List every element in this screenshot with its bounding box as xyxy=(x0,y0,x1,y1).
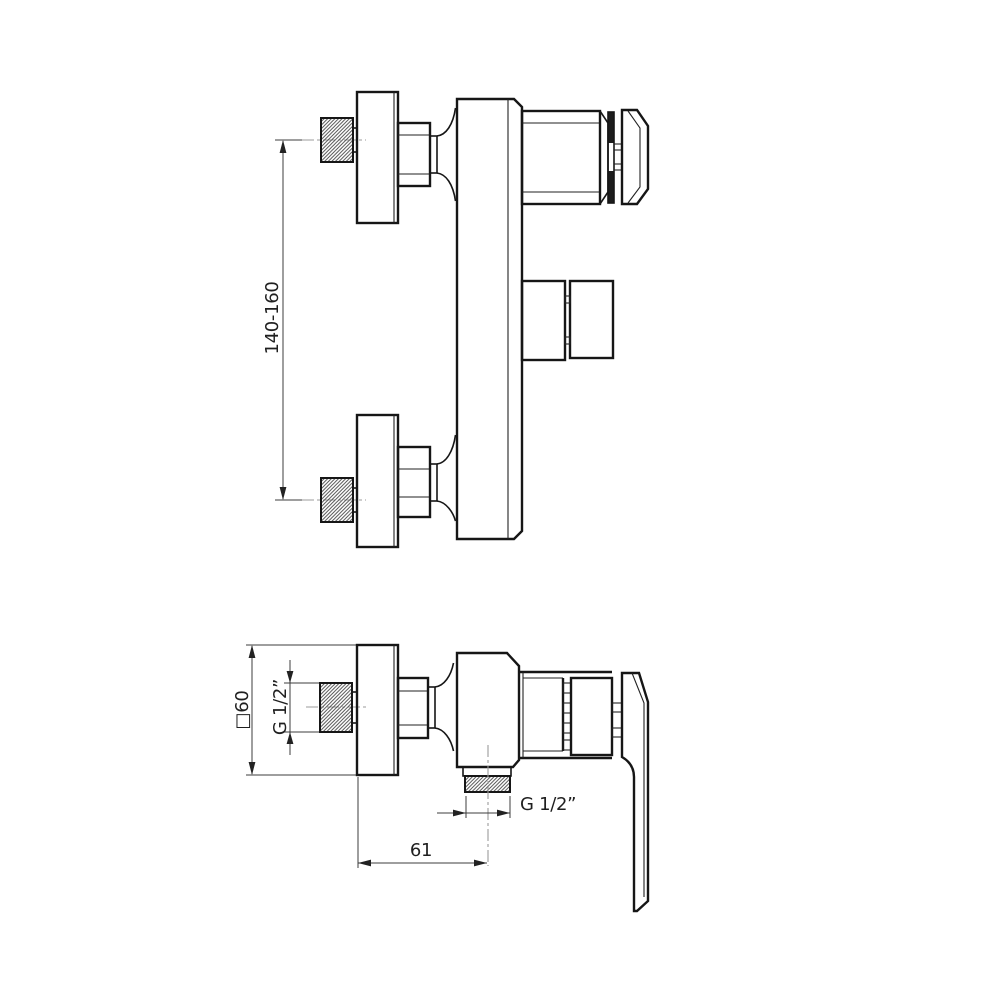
union-nut-top xyxy=(398,123,430,186)
dim-label-inlet-thread: G 1/2” xyxy=(270,679,291,735)
dim-label-plate-size: □60 xyxy=(232,690,253,729)
cartridge-cap xyxy=(571,678,612,755)
dim-label-mounting-distance: 140-160 xyxy=(262,281,283,354)
threaded-tail-side xyxy=(320,683,352,732)
front-view: 140-160 xyxy=(262,92,648,547)
threaded-tail-top xyxy=(321,118,353,162)
escutcheon-plate-side xyxy=(357,645,398,775)
handle-end-cap xyxy=(622,110,648,204)
mixer-body-front xyxy=(457,99,522,539)
dim-label-outlet-offset: 61 xyxy=(410,840,432,861)
dim-label-outlet-thread: G 1/2” xyxy=(520,794,576,815)
cartridge-cylinder xyxy=(522,111,622,204)
drawing-page: 140-160 xyxy=(0,0,1000,1000)
union-nut-bottom xyxy=(398,447,430,517)
dimension-mounting-distance: 140-160 xyxy=(262,140,314,500)
wall-connector-side xyxy=(306,645,454,775)
union-nut-side xyxy=(398,678,428,738)
wall-connector-bottom xyxy=(321,415,456,547)
threaded-tail-bottom xyxy=(321,478,353,522)
cartridge-side xyxy=(519,672,622,758)
wall-connector-top xyxy=(321,92,456,223)
escutcheon-plate-top xyxy=(357,92,398,223)
arrowhead-up xyxy=(280,140,287,153)
bottom-view: □60 G 1/2” xyxy=(232,645,648,911)
arrowhead-down xyxy=(280,487,287,500)
dimension-outlet-thread: G 1/2” xyxy=(437,794,576,818)
technical-drawing-canvas: 140-160 xyxy=(0,0,1000,1000)
outlet-bottom xyxy=(463,745,511,866)
escutcheon-plate-bottom xyxy=(357,415,398,547)
outlet-stub-front xyxy=(522,281,613,360)
handle-lever xyxy=(622,673,648,911)
